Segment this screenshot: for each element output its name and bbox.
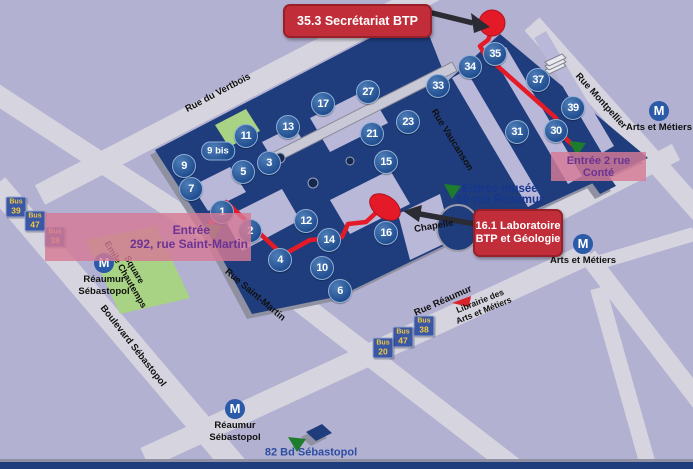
area-label-line: Chapelle [414, 218, 455, 235]
access-marker-9: 9 [172, 154, 196, 178]
metro-icon: M [573, 234, 593, 254]
entrance-82bd-text: 82 Bd Sébastopol [265, 447, 357, 459]
access-marker-30: 30 [544, 119, 568, 143]
access-marker-17: 17 [311, 92, 335, 116]
access-marker-5: 5 [231, 160, 255, 184]
access-marker-27: 27 [356, 80, 380, 104]
bus-stop-label: 47 [394, 337, 413, 346]
access-marker-11: 11 [234, 124, 258, 148]
metro-station-label: Réaumur [190, 421, 280, 431]
entrance-musee-line2: 60 rue Réaumur [457, 195, 544, 206]
entrance-82bd-label: 82 Bd Sébastopol [265, 448, 357, 459]
access-marker-34: 34 [458, 55, 482, 79]
callout-laboratoire-line2: BTP et Géologie [476, 233, 561, 246]
access-marker-15: 15 [374, 150, 398, 174]
access-marker-31: 31 [505, 120, 529, 144]
campus-access-map: 1234567910111213141516172123273031333435… [0, 0, 693, 469]
entrance-saint-martin-line1: Entrée [173, 223, 210, 237]
metro-icon: M [649, 101, 669, 121]
metro-station-arts-et-metiers-nord: MArts et Métiers [614, 101, 693, 133]
metro-station-label: Sébastopol [190, 433, 280, 443]
access-marker-35: 35 [483, 42, 507, 66]
callout-secretariat-btp: 35.3 Secrétariat BTP [283, 4, 432, 38]
metro-icon: M [225, 399, 245, 419]
bus-stop-20-5: Bus20 [373, 338, 394, 359]
entrance-conte-text: Entrée 2 rue Conté [551, 155, 646, 179]
bus-stop-47-4: Bus47 [393, 327, 414, 348]
entrance-saint-martin-line2: 292, rue Saint-Martin [130, 237, 248, 251]
metro-station-reaumur-sebastopol-sud: MRéaumurSébastopol [190, 399, 280, 443]
street-label-rue-du-vertbois: Rue du Vertbois [183, 71, 252, 115]
bus-stop-label: 20 [374, 348, 393, 357]
access-marker-6: 6 [328, 279, 352, 303]
street-label-rue-vaucanson: Rue Vaucanson [429, 107, 476, 173]
bus-stop-label: 39 [7, 207, 26, 216]
access-marker-3: 3 [257, 151, 281, 175]
access-marker-23: 23 [396, 110, 420, 134]
bus-stop-label: 38 [415, 326, 434, 335]
callout-secretariat-text: 35.3 Secrétariat BTP [297, 14, 418, 28]
access-marker-39: 39 [561, 96, 585, 120]
access-marker-33: 33 [426, 74, 450, 98]
access-marker-7: 7 [179, 177, 203, 201]
access-marker-37: 37 [526, 68, 550, 92]
area-label-chapelle: Chapelle [414, 218, 455, 235]
callout-laboratoire-btp: 16.1 Laboratoire BTP et Géologie [473, 209, 563, 257]
street-label-boulevard-s-bastopol: Boulevard Sébastopol [98, 303, 168, 389]
entrance-box-conte: Entrée 2 rue Conté [551, 152, 646, 181]
access-marker-16: 16 [374, 221, 398, 245]
access-marker-13: 13 [276, 115, 300, 139]
bus-stop-47-1: Bus47 [25, 211, 46, 232]
bus-stop-39-0: Bus39 [6, 197, 27, 218]
access-marker-10: 10 [310, 256, 334, 280]
access-marker-9bis: 9 bis [201, 142, 235, 161]
callout-laboratoire-line1: 16.1 Laboratoire [476, 220, 561, 233]
bus-stop-label: 47 [26, 221, 45, 230]
metro-station-label: Arts et Métiers [538, 256, 628, 266]
access-marker-21: 21 [360, 122, 384, 146]
access-marker-4: 4 [268, 248, 292, 272]
entrance-musee-label: Entrée musée 60 rue Réaumur [457, 184, 544, 206]
entrance-box-saint-martin: Entrée 292, rue Saint-Martin [45, 213, 251, 261]
street-label-rue-saint-martin: Rue Saint-Martin [223, 267, 288, 324]
access-marker-12: 12 [294, 209, 318, 233]
access-marker-14: 14 [317, 228, 341, 252]
